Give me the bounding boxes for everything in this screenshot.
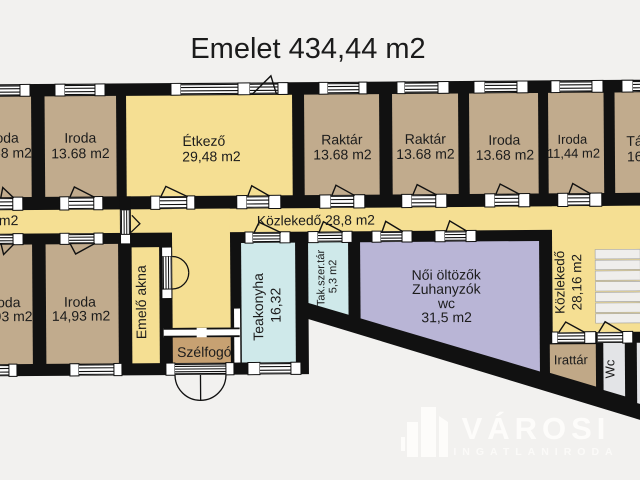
svg-text:13.68 m2: 13.68 m2 xyxy=(0,145,32,161)
svg-text:13.68 m2: 13.68 m2 xyxy=(313,146,372,162)
svg-text:Közlekedő: Közlekedő xyxy=(552,251,567,314)
svg-text:31,5 m2: 31,5 m2 xyxy=(421,309,472,325)
svg-text:Wc: Wc xyxy=(602,359,617,378)
svg-text:Tak.szer.tár: Tak.szer.tár xyxy=(315,249,327,306)
svg-text:Emelő akna: Emelő akna xyxy=(133,265,150,339)
svg-text:16,: 16, xyxy=(627,148,640,164)
svg-text:Iroda: Iroda xyxy=(557,132,588,147)
svg-text:VÁROSI: VÁROSI xyxy=(462,411,611,446)
svg-text:Raktár: Raktár xyxy=(321,131,363,147)
svg-text:13.68 m2: 13.68 m2 xyxy=(476,147,535,163)
svg-text:Emelet 434,44 m2: Emelet 434,44 m2 xyxy=(190,33,425,65)
svg-text:Iroda: Iroda xyxy=(0,130,19,146)
svg-text:Iroda: Iroda xyxy=(64,130,96,146)
svg-text:16,32: 16,32 xyxy=(267,288,283,323)
svg-text:29,48 m2: 29,48 m2 xyxy=(182,148,241,164)
svg-text:28,16 m2: 28,16 m2 xyxy=(569,254,584,310)
svg-text:Raktár: Raktár xyxy=(405,131,447,147)
svg-text:13.68 m2: 13.68 m2 xyxy=(396,146,455,162)
svg-text:INGATLANIRODA: INGATLANIRODA xyxy=(453,446,618,458)
svg-text:Teakonyha: Teakonyha xyxy=(250,273,266,341)
svg-text:14,93 m2: 14,93 m2 xyxy=(52,307,111,323)
svg-text:m2: m2 xyxy=(0,212,19,228)
svg-text:5,3 m2: 5,3 m2 xyxy=(327,260,339,294)
svg-text:11,44 m2: 11,44 m2 xyxy=(547,146,600,161)
svg-text:13.68 m2: 13.68 m2 xyxy=(51,145,110,161)
svg-text:Iroda: Iroda xyxy=(488,132,520,148)
svg-text:Étkező: Étkező xyxy=(182,133,225,149)
svg-text:14,93 m2: 14,93 m2 xyxy=(0,308,33,324)
svg-text:Közlekedő 28,8 m2: Közlekedő 28,8 m2 xyxy=(257,213,375,229)
svg-text:Irattár: Irattár xyxy=(554,352,589,367)
svg-text:Szélfogó: Szélfogó xyxy=(177,344,232,360)
svg-text:Tár: Tár xyxy=(626,133,640,149)
